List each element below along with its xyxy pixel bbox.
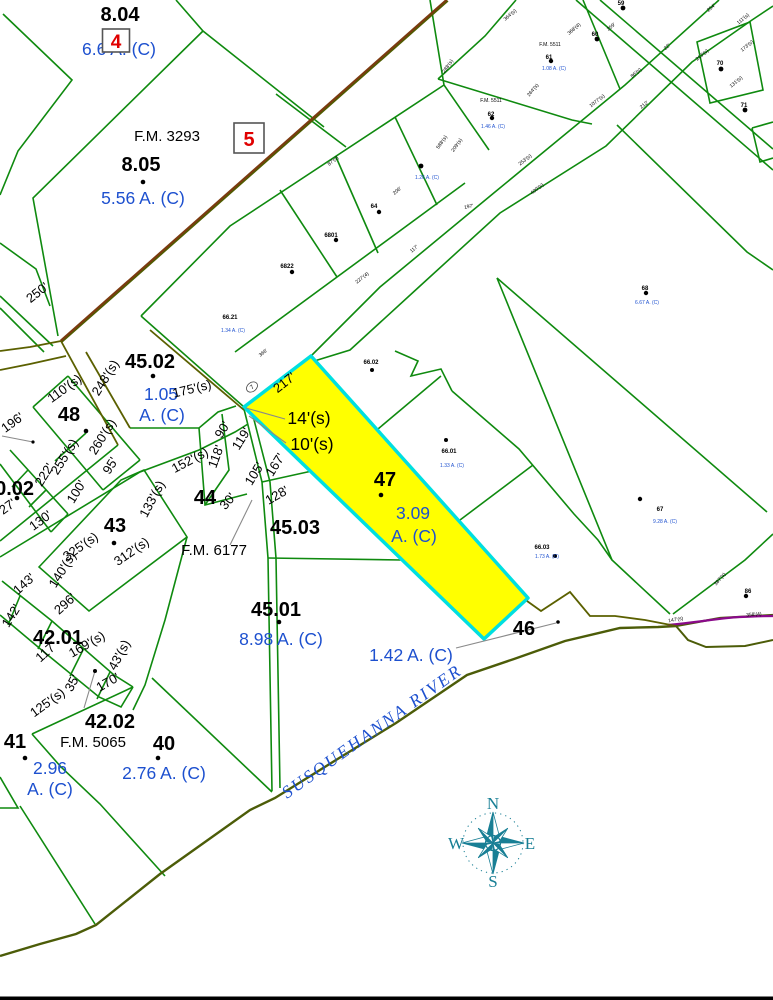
svg-text:1.34 A. (C): 1.34 A. (C) [221, 328, 245, 334]
svg-text:48: 48 [58, 404, 80, 426]
svg-text:86: 86 [745, 589, 752, 595]
svg-text:F.M. 5511: F.M. 5511 [480, 98, 502, 104]
svg-text:45.03: 45.03 [270, 517, 320, 539]
svg-text:8.04: 8.04 [101, 4, 141, 26]
svg-text:59: 59 [618, 1, 625, 7]
svg-text:F.M. 5065: F.M. 5065 [60, 734, 126, 751]
svg-text:45.01: 45.01 [251, 599, 301, 621]
svg-text:F.M. 6177: F.M. 6177 [181, 542, 247, 559]
svg-text:68: 68 [642, 286, 649, 292]
svg-text:10'(s): 10'(s) [290, 434, 333, 454]
svg-text:1.26 A. (C): 1.26 A. (C) [415, 175, 439, 181]
svg-text:F.M. 3293: F.M. 3293 [134, 128, 200, 145]
svg-text:1.08 A. (C): 1.08 A. (C) [542, 66, 566, 72]
svg-text:4: 4 [111, 32, 122, 53]
svg-text:41: 41 [4, 731, 26, 753]
svg-text:6822: 6822 [280, 264, 294, 270]
svg-text:66.02: 66.02 [363, 360, 379, 366]
svg-text:45.02: 45.02 [125, 351, 175, 373]
svg-text:43: 43 [104, 515, 126, 537]
svg-text:2.76 A. (C): 2.76 A. (C) [122, 763, 206, 783]
svg-text:2.96: 2.96 [33, 758, 67, 778]
svg-text:1.33 A. (C): 1.33 A. (C) [440, 463, 464, 469]
svg-text:F.M. 5511: F.M. 5511 [539, 42, 561, 48]
svg-text:5: 5 [243, 129, 254, 151]
svg-text:9.28 A. (C): 9.28 A. (C) [653, 519, 677, 525]
svg-text:67: 67 [657, 507, 664, 513]
svg-text:5.56 A. (C): 5.56 A. (C) [101, 188, 185, 208]
svg-text:62: 62 [488, 112, 495, 118]
svg-text:S: S [488, 872, 497, 891]
svg-text:60: 60 [592, 32, 599, 38]
svg-text:14'(s): 14'(s) [287, 408, 330, 428]
svg-text:8.98 A. (C): 8.98 A. (C) [239, 629, 323, 649]
svg-text:66.21: 66.21 [222, 315, 238, 321]
svg-text:A. (C): A. (C) [27, 779, 73, 799]
svg-text:A. (C): A. (C) [391, 526, 437, 546]
svg-text:70: 70 [717, 61, 724, 67]
svg-text:W: W [448, 834, 465, 853]
svg-text:42.02: 42.02 [85, 711, 135, 733]
svg-text:61: 61 [546, 55, 553, 61]
svg-text:6.67 A. (C): 6.67 A. (C) [635, 300, 659, 306]
svg-text:8.05: 8.05 [122, 154, 161, 176]
svg-text:30.02: 30.02 [0, 478, 34, 500]
svg-text:40: 40 [153, 733, 175, 755]
svg-text:A. (C): A. (C) [139, 405, 185, 425]
svg-text:64: 64 [371, 204, 378, 210]
svg-text:71: 71 [741, 103, 748, 109]
svg-text:3.09: 3.09 [396, 503, 430, 523]
svg-text:1.73 A. (C): 1.73 A. (C) [535, 554, 559, 560]
svg-text:N: N [487, 794, 499, 813]
svg-text:1.42 A. (C): 1.42 A. (C) [369, 645, 453, 665]
svg-text:66.01: 66.01 [441, 449, 457, 455]
svg-text:46: 46 [513, 618, 535, 640]
svg-text:E: E [525, 834, 535, 853]
svg-text:6801: 6801 [324, 233, 338, 239]
svg-text:66.03: 66.03 [534, 545, 550, 551]
svg-text:47: 47 [374, 469, 396, 491]
svg-text:44: 44 [194, 487, 217, 509]
svg-text:1.46 A. (C): 1.46 A. (C) [481, 124, 505, 130]
